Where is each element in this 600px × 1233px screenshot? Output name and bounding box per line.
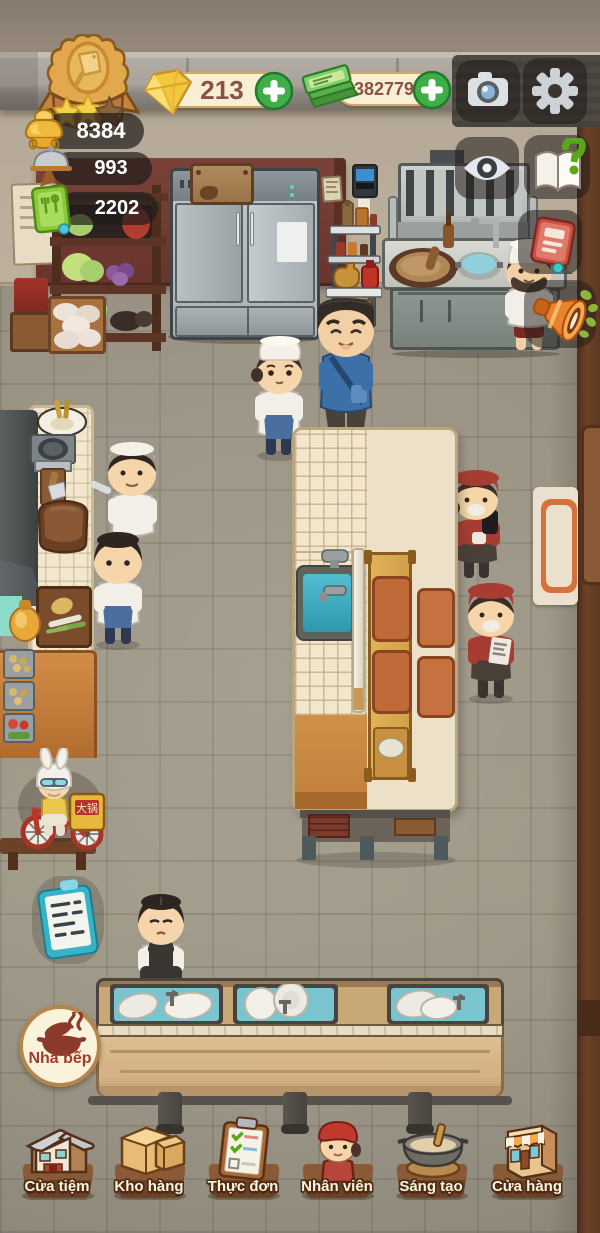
svg-text:大锅: 大锅 <box>76 801 98 815</box>
